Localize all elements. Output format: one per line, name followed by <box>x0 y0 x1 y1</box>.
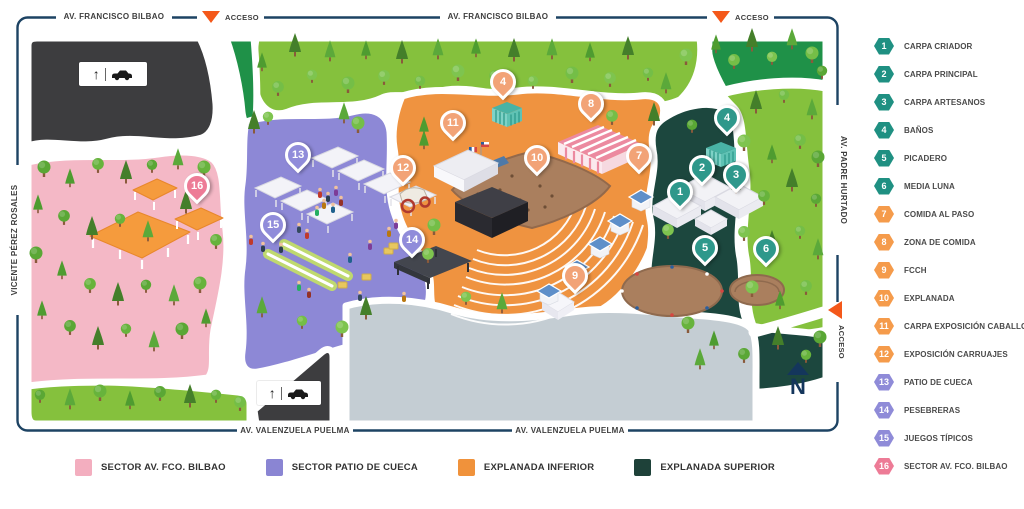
legend-item: 12EXPOSICIÓN CARRUAJES <box>874 340 1024 368</box>
north-label: N <box>781 375 815 399</box>
street-label-vicente-perez-rosales: VICENTE PÉREZ ROSALES <box>5 165 25 315</box>
access-triangle-icon <box>202 11 220 23</box>
legend-item: 1CARPA CRIADOR <box>874 32 1024 60</box>
legend-item-label: JUEGOS TÍPICOS <box>904 434 973 443</box>
legend-number-badge: 15 <box>874 430 894 447</box>
grass-darkgreen-left <box>226 38 257 127</box>
legend-number-badge: 2 <box>874 66 894 83</box>
sector-legend-label: SECTOR AV. FCO. BILBAO <box>101 462 226 473</box>
parking-area-topleft <box>28 38 216 146</box>
map-legend-items: 1CARPA CRIADOR2CARPA PRINCIPAL3CARPA ART… <box>874 32 1024 480</box>
legend-item-label: EXPLANADA <box>904 294 955 303</box>
street-label-padre-hurtado: AV. PADRE HURTADO <box>833 105 853 255</box>
legend-number-badge: 4 <box>874 122 894 139</box>
legend-item: 10EXPLANADA <box>874 284 1024 312</box>
access-label: ACCESO <box>735 13 769 22</box>
legend-item-label: ZONA DE COMIDA <box>904 238 976 247</box>
legend-item-label: CARPA ARTESANOS <box>904 98 985 107</box>
car-icon <box>111 68 133 81</box>
legend-item-label: CARPA CRIADOR <box>904 42 972 51</box>
sector-legend-item: SECTOR PATIO DE CUECA <box>266 459 418 476</box>
up-arrow-icon: ↑ <box>93 67 100 81</box>
sector-color-swatch <box>634 459 651 476</box>
sign-divider <box>105 68 107 81</box>
sector-color-swatch <box>266 459 283 476</box>
picadero-ring <box>620 265 724 317</box>
legend-number-badge: 16 <box>874 458 894 475</box>
access-triangle-icon <box>828 301 842 319</box>
access-label: ACCESO <box>225 13 259 22</box>
access-marker-top-right: ACCESO <box>707 9 774 25</box>
access-triangle-icon <box>712 11 730 23</box>
legend-item: 11CARPA EXPOSICIÓN CABALLOS <box>874 312 1024 340</box>
legend-item-label: SECTOR AV. FCO. BILBAO <box>904 462 1008 471</box>
legend-number-badge: 7 <box>874 206 894 223</box>
sector-legend-item: EXPLANADA SUPERIOR <box>634 459 775 476</box>
sector-legend-label: EXPLANADA INFERIOR <box>484 462 594 473</box>
parking-sign-bottom: ↑ <box>257 381 321 405</box>
sector-legend-label: SECTOR PATIO DE CUECA <box>292 462 418 473</box>
legend-item: 6MEDIA LUNA <box>874 172 1024 200</box>
fonda-venue-map-page: AV. FRANCISCO BILBAO AV. FRANCISCO BILBA… <box>0 0 1024 509</box>
up-arrow-icon: ↑ <box>269 386 276 400</box>
legend-number-badge: 12 <box>874 346 894 363</box>
legend-number-badge: 14 <box>874 402 894 419</box>
legend-number-badge: 9 <box>874 262 894 279</box>
legend-item-label: MEDIA LUNA <box>904 182 955 191</box>
legend-number-badge: 6 <box>874 178 894 195</box>
legend-item-label: FCCH <box>904 266 927 275</box>
legend-item: 3CARPA ARTESANOS <box>874 88 1024 116</box>
north-indicator: N <box>781 362 815 399</box>
legend-item: 4BAÑOS <box>874 116 1024 144</box>
street-label-valenzuela-puelma-right: AV. VALENZUELA PUELMA <box>512 424 628 438</box>
sector-legend: SECTOR AV. FCO. BILBAOSECTOR PATIO DE CU… <box>75 459 775 476</box>
sector-legend-item: SECTOR AV. FCO. BILBAO <box>75 459 226 476</box>
sector-legend-label: EXPLANADA SUPERIOR <box>660 462 775 473</box>
street-label-francisco-bilbao-right: AV. FRANCISCO BILBAO <box>440 10 556 24</box>
legend-number-badge: 5 <box>874 150 894 167</box>
plaza-area <box>346 300 756 424</box>
legend-item: 9FCCH <box>874 256 1024 284</box>
legend-item-label: COMIDA AL PASO <box>904 210 974 219</box>
legend-item: 5PICADERO <box>874 144 1024 172</box>
legend-item: 14PESEBRERAS <box>874 396 1024 424</box>
legend-number-badge: 3 <box>874 94 894 111</box>
legend-number-badge: 8 <box>874 234 894 251</box>
legend-item: 7COMIDA AL PASO <box>874 200 1024 228</box>
legend-item-label: CARPA PRINCIPAL <box>904 70 978 79</box>
legend-number-badge: 1 <box>874 38 894 55</box>
car-icon <box>287 387 309 400</box>
street-label-francisco-bilbao-left: AV. FRANCISCO BILBAO <box>56 10 172 24</box>
parking-sign-top: ↑ <box>79 62 147 86</box>
legend-item-label: EXPOSICIÓN CARRUAJES <box>904 350 1008 359</box>
sector-color-swatch <box>458 459 475 476</box>
legend-item: 16SECTOR AV. FCO. BILBAO <box>874 452 1024 480</box>
sector-legend-item: EXPLANADA INFERIOR <box>458 459 594 476</box>
legend-item: 13PATIO DE CUECA <box>874 368 1024 396</box>
access-marker-top-left: ACCESO <box>197 9 264 25</box>
legend-number-badge: 13 <box>874 374 894 391</box>
street-label-valenzuela-puelma-left: AV. VALENZUELA PUELMA <box>237 424 353 438</box>
sign-divider <box>281 387 283 400</box>
legend-item-label: PATIO DE CUECA <box>904 378 973 387</box>
legend-item: 8ZONA DE COMIDA <box>874 228 1024 256</box>
legend-number-badge: 11 <box>874 318 894 335</box>
legend-item-label: BAÑOS <box>904 126 933 135</box>
legend-item: 2CARPA PRINCIPAL <box>874 60 1024 88</box>
legend-number-badge: 10 <box>874 290 894 307</box>
sector-color-swatch <box>75 459 92 476</box>
legend-item-label: PICADERO <box>904 154 947 163</box>
legend-item: 15JUEGOS TÍPICOS <box>874 424 1024 452</box>
legend-item-label: CARPA EXPOSICIÓN CABALLOS <box>904 322 1024 331</box>
legend-item-label: PESEBRERAS <box>904 406 960 415</box>
